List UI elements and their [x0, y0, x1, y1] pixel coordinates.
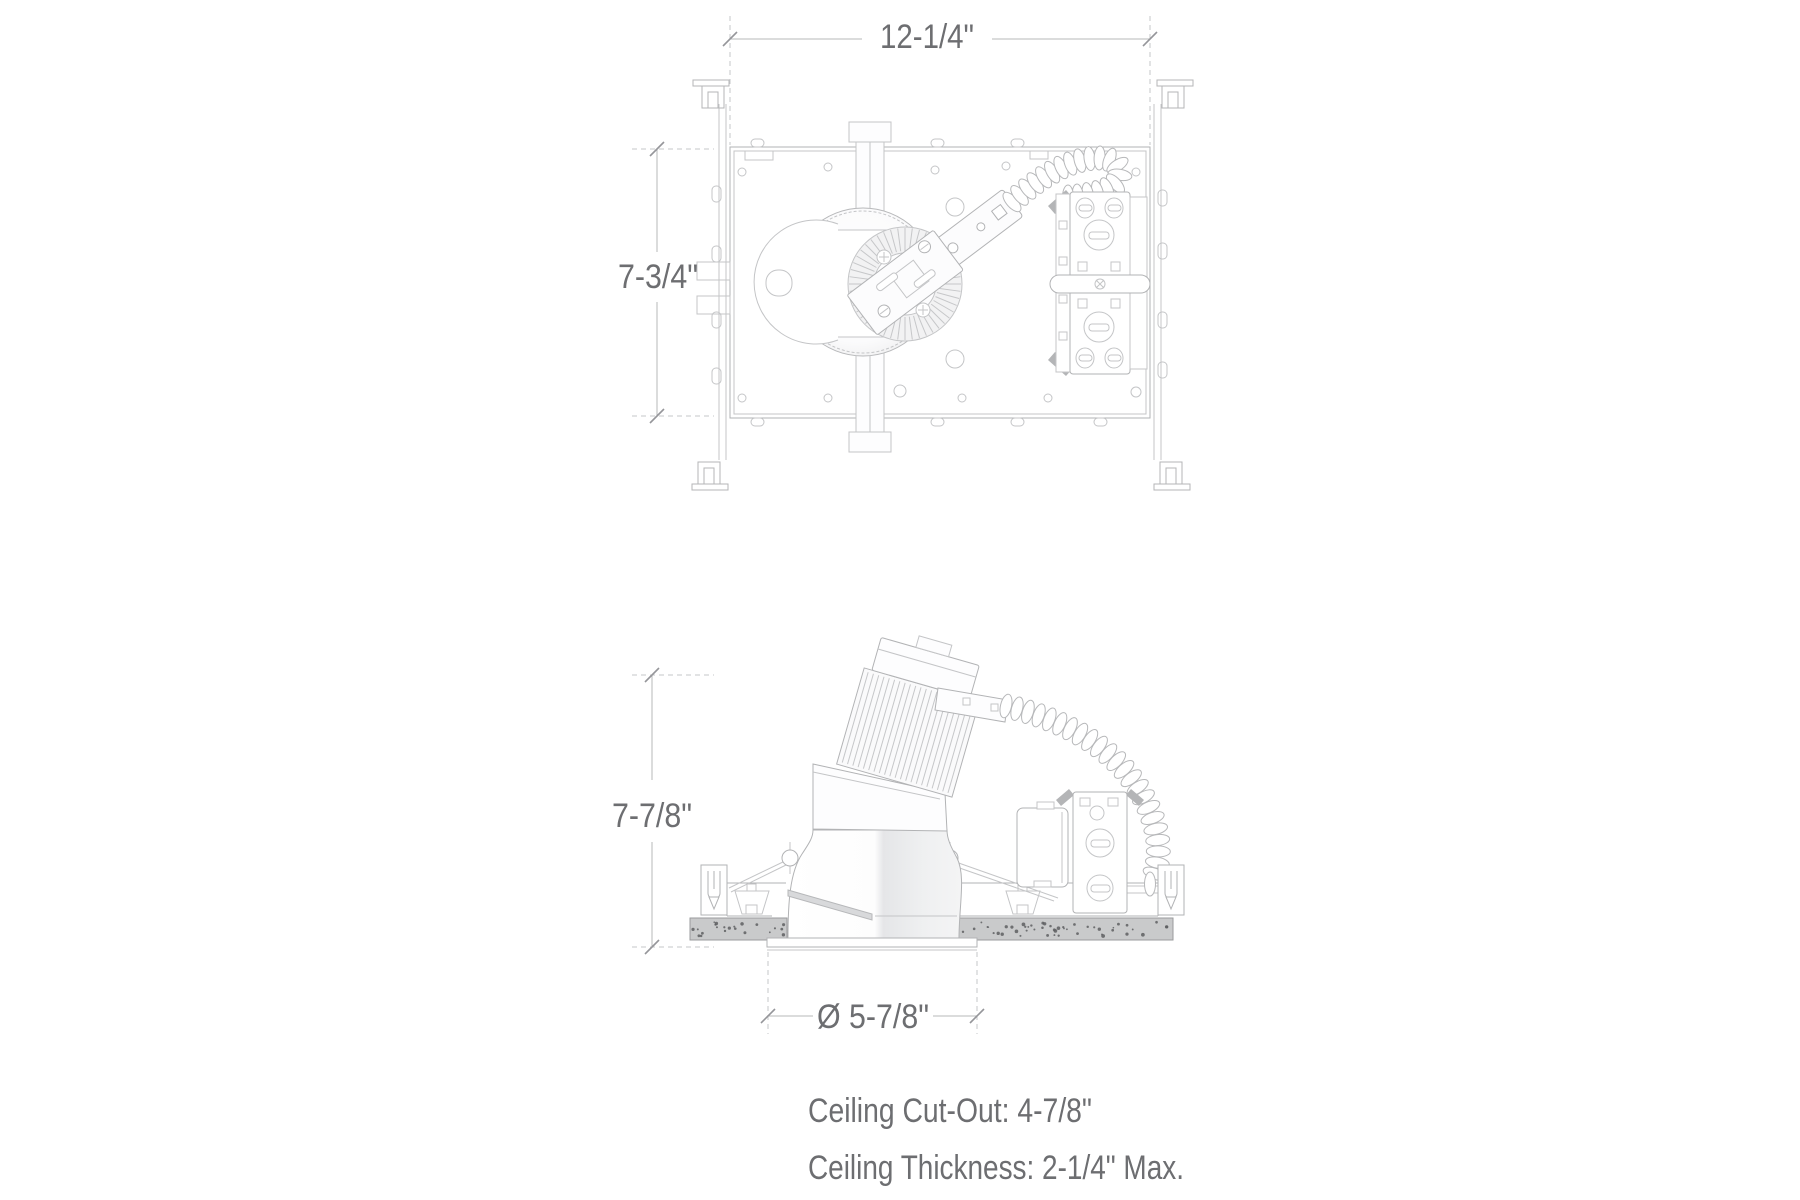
notes: Ceiling Cut-Out: 4-7/8" Ceiling Thicknes…: [808, 1092, 1184, 1187]
technical-drawing-canvas: 12-1/4" 7-3/4" 7-7/8": [0, 0, 1800, 1200]
top-view-plan: [692, 80, 1193, 490]
dim-trim-diameter-label: Ø 5-7/8": [817, 998, 929, 1036]
plan-junction-box: [1048, 190, 1150, 376]
elevation-trim-flange: [767, 938, 977, 950]
note-ceiling-thickness: Ceiling Thickness: 2-1/4" Max.: [808, 1149, 1184, 1187]
note-ceiling-cutout: Ceiling Cut-Out: 4-7/8": [808, 1092, 1092, 1130]
dim-plate-depth: 7-3/4": [618, 142, 714, 423]
elevation-ceiling-right: [958, 918, 1173, 940]
elevation-junction-box: [1056, 789, 1144, 913]
dim-plate-width: 12-1/4": [723, 16, 1157, 145]
elevation-hanger-bracket-left: [701, 865, 727, 915]
dim-plate-depth-label: 7-3/4": [618, 258, 698, 296]
elevation-ceiling-left: [690, 918, 787, 940]
plan-hanger-bar-right: [1154, 80, 1193, 490]
dim-housing-height: 7-7/8": [612, 668, 714, 954]
dim-housing-height-label: 7-7/8": [612, 797, 692, 835]
dim-plate-width-label: 12-1/4": [880, 18, 974, 56]
drawing-sheet: 12-1/4" 7-3/4" 7-7/8": [0, 0, 1800, 1200]
elevation-driver-box: [1017, 802, 1068, 887]
elevation-hanger-bracket-right: [1158, 865, 1184, 915]
elevation-reflector-can: [788, 830, 962, 938]
dim-trim-diameter: Ø 5-7/8": [761, 952, 984, 1036]
side-view-elevation: [690, 624, 1184, 950]
